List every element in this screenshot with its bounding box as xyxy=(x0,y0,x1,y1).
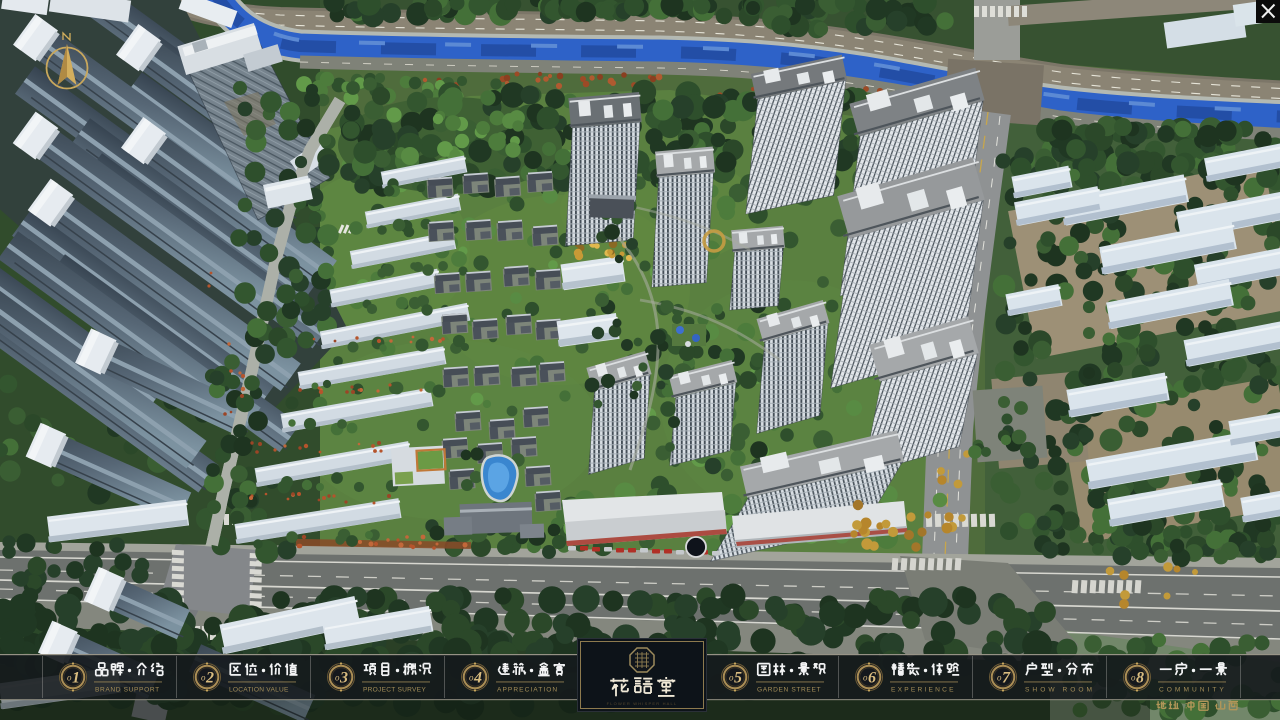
svg-text:3: 3 xyxy=(339,670,348,687)
svg-text:FLOWER WHISPER HALL: FLOWER WHISPER HALL xyxy=(607,701,678,706)
svg-text:2: 2 xyxy=(205,670,214,687)
svg-text:PROJECT SURVEY: PROJECT SURVEY xyxy=(363,687,426,694)
svg-text:8: 8 xyxy=(1136,670,1144,687)
svg-text:LOCATION VALUE: LOCATION VALUE xyxy=(229,687,289,694)
svg-text:7: 7 xyxy=(1002,670,1011,687)
svg-text:1: 1 xyxy=(72,670,80,687)
svg-text:COMMUNITY: COMMUNITY xyxy=(1159,687,1227,694)
svg-text:BRAND SUPPORT: BRAND SUPPORT xyxy=(95,687,160,694)
svg-text:4: 4 xyxy=(473,670,482,687)
svg-text:5: 5 xyxy=(734,670,742,687)
svg-text:GARDEN STREET: GARDEN STREET xyxy=(757,687,821,694)
svg-text:APPRECIATION: APPRECIATION xyxy=(497,687,558,694)
svg-text:EXPERIENCE: EXPERIENCE xyxy=(891,687,956,694)
svg-text:SHOW ROOM: SHOW ROOM xyxy=(1025,687,1095,694)
svg-text:6: 6 xyxy=(868,670,876,687)
